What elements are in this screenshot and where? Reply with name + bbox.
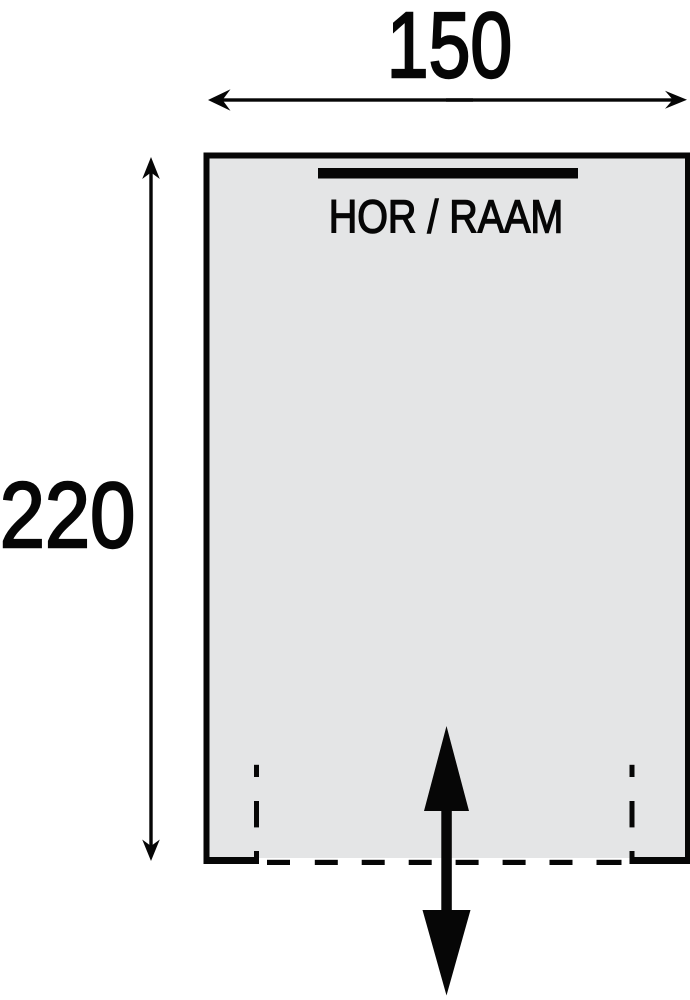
svg-text:220: 220 [0,464,135,567]
svg-text:150: 150 [387,0,512,97]
svg-text:HOR / RAAM: HOR / RAAM [329,192,564,243]
